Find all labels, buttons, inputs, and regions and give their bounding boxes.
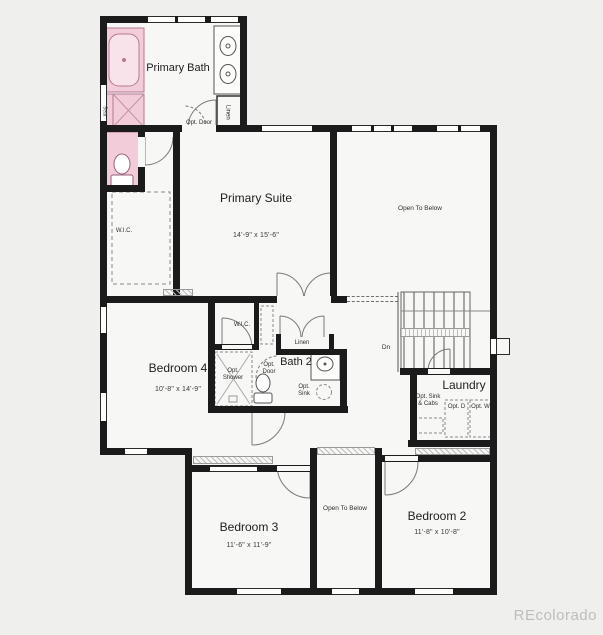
label-opt-washer: Opt. W xyxy=(471,404,490,411)
dims-primary-suite: 14'-9" x 15'-6" xyxy=(206,232,306,240)
wall-segment xyxy=(216,125,240,132)
label-opt-sink: Opt. Sink xyxy=(294,384,314,397)
wall-segment xyxy=(340,349,347,413)
wall-segment xyxy=(208,406,348,413)
toilet-icon-bath2 xyxy=(254,374,272,403)
window xyxy=(100,393,107,421)
wall-segment xyxy=(276,349,346,355)
door-opening xyxy=(428,369,450,374)
fixtures-layer xyxy=(0,0,603,635)
label-stairs-down: Dn xyxy=(378,344,394,351)
window xyxy=(262,125,312,132)
wall-segment xyxy=(330,125,337,303)
room-label-open-to-below-large: Open To Below xyxy=(395,205,445,212)
label-opt-door-bath2: Opt. Door xyxy=(258,362,280,375)
dims-bedroom-2: 11'-8" x 10'-8" xyxy=(395,529,479,537)
room-label-bedroom-4: Bedroom 4 xyxy=(136,362,220,375)
door-opening xyxy=(385,456,418,461)
door-arc-bedroom4 xyxy=(252,412,285,445)
label-linen-primary: Linen xyxy=(224,100,231,124)
label-shower-seat: Seat xyxy=(101,98,107,124)
window-mullion xyxy=(175,16,178,23)
sink-icon-bath2 xyxy=(311,352,340,400)
watermark: REcolorado xyxy=(514,607,597,624)
label-linen-hall: Linen xyxy=(284,340,320,347)
window xyxy=(352,125,412,132)
wall-segment xyxy=(490,125,497,595)
wic-primary-outline xyxy=(112,192,170,284)
double-sink-vanity-icon xyxy=(214,26,243,94)
dims-bedroom-4: 10'-8" x 14'-9" xyxy=(136,386,220,394)
bedroom2-top-strip xyxy=(415,448,490,455)
bathtub-icon xyxy=(104,28,144,92)
room-label-bath-2: Bath 2 xyxy=(280,356,312,368)
wall-segment xyxy=(103,448,192,455)
window xyxy=(332,588,359,595)
room-label-laundry: Laundry xyxy=(424,379,504,392)
wic4-shelf-outline xyxy=(261,306,273,344)
window-mullion xyxy=(458,125,461,132)
window-mullion xyxy=(391,125,394,132)
door-arc-linen-left xyxy=(280,316,301,337)
corridor-railing xyxy=(317,447,375,455)
room-label-primary-bath: Primary Bath xyxy=(146,62,210,74)
window-mullion xyxy=(371,125,374,132)
closet-bypass-doors xyxy=(210,466,257,472)
wall-segment xyxy=(173,125,180,303)
label-opt-door-primary: Opt. Door xyxy=(186,120,212,127)
shower-icon xyxy=(104,94,144,127)
window xyxy=(415,588,453,595)
wall-segment xyxy=(410,375,417,447)
wall-segment xyxy=(408,440,497,447)
label-opt-sink-cabs: Opt. Sink & Cabs xyxy=(414,394,442,407)
door-opening xyxy=(222,345,252,349)
door-arc-linen-right xyxy=(302,316,324,337)
wall-segment xyxy=(100,185,145,192)
wall-segment xyxy=(331,296,347,303)
label-wic-primary: W.I.C. xyxy=(106,228,142,235)
wall-segment xyxy=(103,296,277,303)
door-opening xyxy=(277,466,310,471)
bedroom3-closet-strip xyxy=(193,456,273,464)
door-arc-bedroom2 xyxy=(385,462,418,495)
label-opt-dryer: Opt. D xyxy=(447,404,466,411)
window xyxy=(125,448,147,455)
wall-segment xyxy=(185,448,192,595)
window xyxy=(100,307,107,333)
wall-segment xyxy=(208,296,215,413)
label-wic-bedroom4: W.I.C. xyxy=(224,322,260,329)
window xyxy=(211,16,238,23)
room-label-open-to-below-small: Open To Below xyxy=(322,505,368,512)
wall-segment xyxy=(100,16,107,455)
window xyxy=(490,339,497,354)
stair-railing xyxy=(347,296,398,302)
stair-landing xyxy=(400,328,470,337)
door-opening xyxy=(277,296,331,303)
wall-segment xyxy=(375,448,382,595)
dims-bedroom-3: 11'-6" x 11'-9" xyxy=(207,542,291,550)
room-label-bedroom-2: Bedroom 2 xyxy=(395,510,479,523)
label-opt-shower: Opt. Shower xyxy=(218,368,248,381)
door-opening xyxy=(138,137,145,167)
room-label-bedroom-3: Bedroom 3 xyxy=(207,521,291,534)
window xyxy=(237,588,281,595)
floor-plan: Primary Bath Primary Suite 14'-9" x 15'-… xyxy=(0,0,603,635)
wall-segment xyxy=(240,16,247,132)
door-arc-toilet-room xyxy=(145,137,173,165)
suite-wall-strip xyxy=(163,289,193,296)
room-label-primary-suite: Primary Suite xyxy=(216,192,296,205)
